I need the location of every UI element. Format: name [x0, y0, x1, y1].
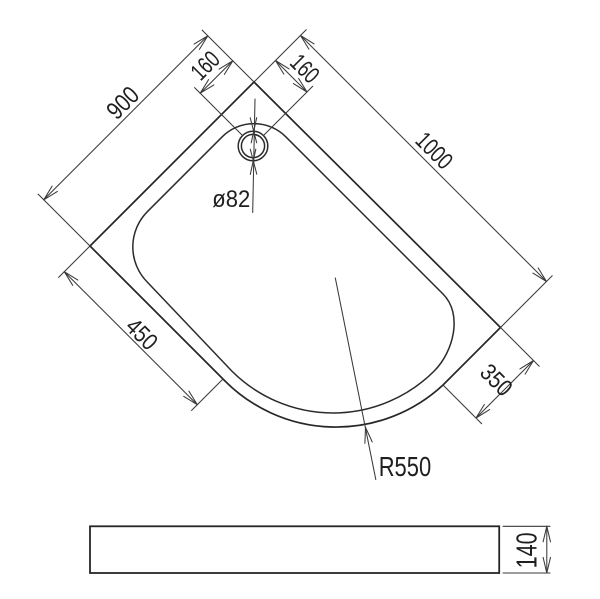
svg-text:ø82: ø82 — [212, 186, 250, 213]
svg-text:R550: R550 — [379, 451, 432, 482]
svg-text:140: 140 — [512, 532, 544, 568]
